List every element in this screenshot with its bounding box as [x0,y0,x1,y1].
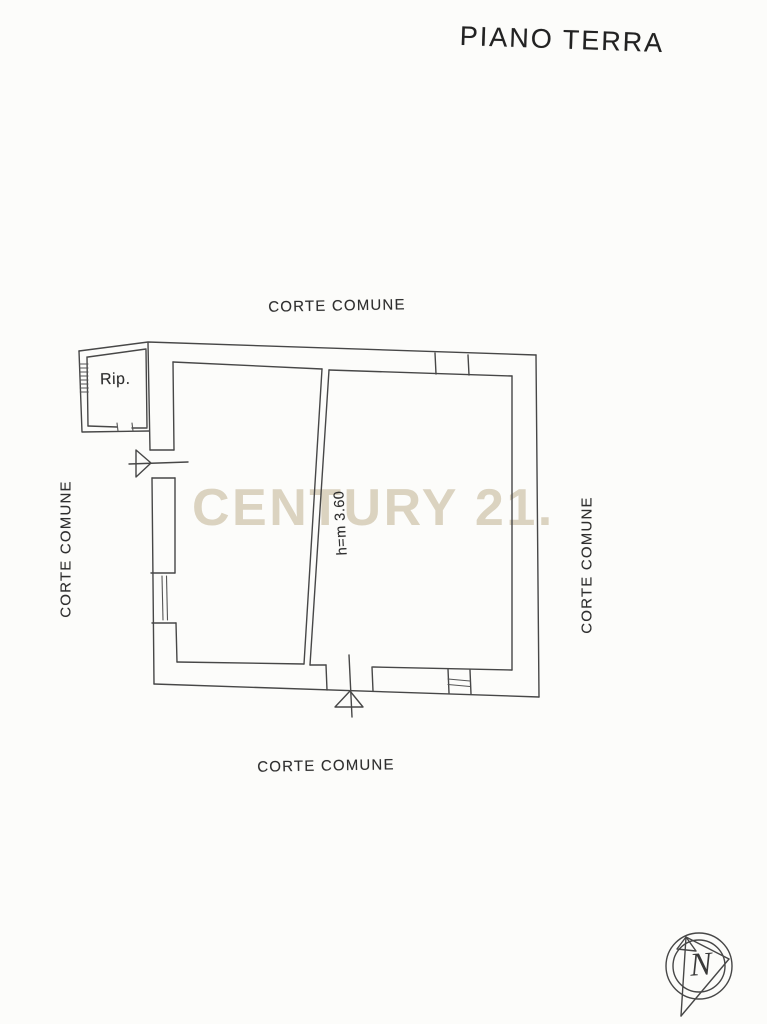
storage-annex-walls [79,349,149,432]
left-door-swing-icon [129,450,188,478]
ceiling-height-label: h=m 3.60 [331,490,350,556]
scanned-floor-plan-page: CENTURY 21. [0,0,767,1024]
storage-room-label: Rip. [100,371,131,390]
floor-plan-drawing [0,0,767,1024]
bottom-window-icon [448,669,471,694]
left-window-icon [151,573,176,623]
courtyard-label-right: CORTE COMUNE [579,496,596,633]
top-wall-window-icon [435,353,469,375]
courtyard-label-top: CORTE COMUNE [268,296,406,315]
partition-wall [304,369,329,665]
compass-north-letter: N [689,946,714,984]
left-room-inner-walls [173,362,322,664]
entrance-door-arrow-icon [326,655,373,717]
courtyard-label-bottom: CORTE COMUNE [257,756,395,775]
exterior-walls [79,342,539,697]
courtyard-label-left: CORTE COMUNE [58,480,75,617]
